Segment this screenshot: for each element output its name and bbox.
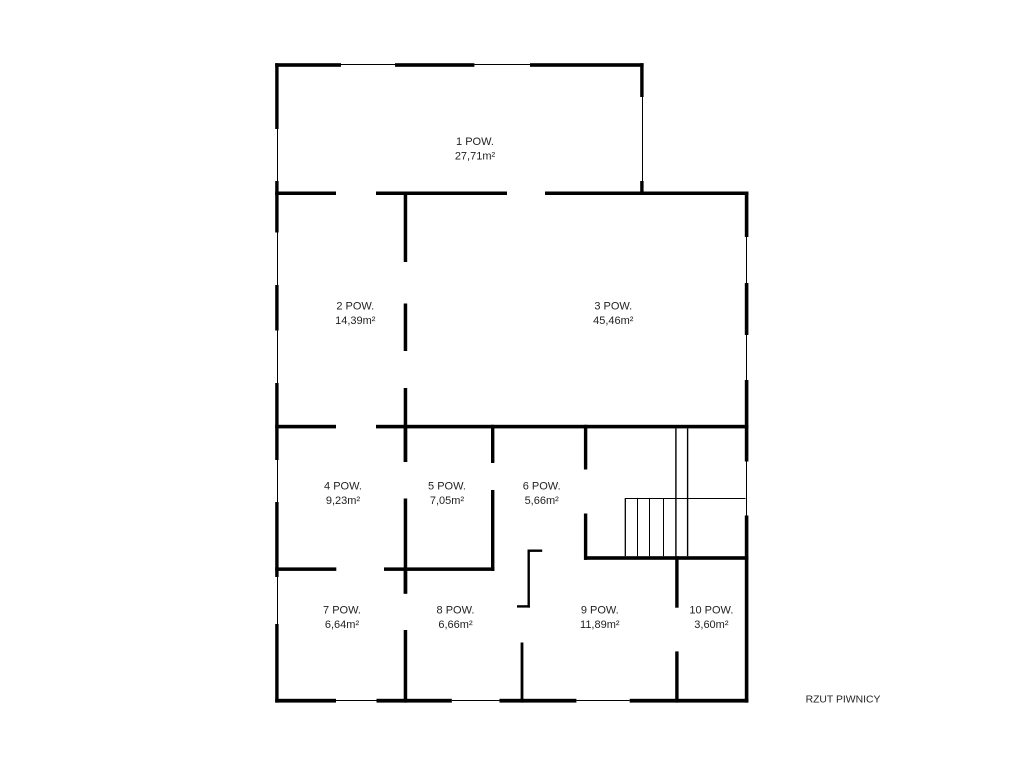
svg-text:8 POW.: 8 POW. (437, 605, 475, 617)
svg-text:14,39m²: 14,39m² (335, 315, 376, 327)
svg-text:2 POW.: 2 POW. (336, 301, 374, 313)
svg-text:6 POW.: 6 POW. (523, 481, 561, 493)
svg-text:3 POW.: 3 POW. (594, 301, 632, 313)
svg-text:11,89m²: 11,89m² (580, 619, 620, 631)
svg-text:5,66m²: 5,66m² (525, 495, 560, 507)
svg-text:6,64m²: 6,64m² (325, 619, 360, 631)
svg-text:9 POW.: 9 POW. (581, 605, 619, 617)
svg-text:6,66m²: 6,66m² (438, 619, 473, 631)
svg-text:10 POW.: 10 POW. (689, 605, 733, 617)
svg-text:7 POW.: 7 POW. (323, 605, 361, 617)
svg-text:1 POW.: 1 POW. (456, 136, 494, 148)
svg-text:4 POW.: 4 POW. (324, 481, 362, 493)
svg-text:45,46m²: 45,46m² (593, 315, 634, 327)
svg-text:RZUT PIWNICY: RZUT PIWNICY (806, 694, 881, 705)
svg-text:7,05m²: 7,05m² (430, 495, 465, 507)
svg-text:9,23m²: 9,23m² (326, 495, 361, 507)
svg-text:5 POW.: 5 POW. (428, 481, 466, 493)
svg-text:3,60m²: 3,60m² (694, 619, 729, 631)
svg-text:27,71m²: 27,71m² (455, 151, 496, 163)
